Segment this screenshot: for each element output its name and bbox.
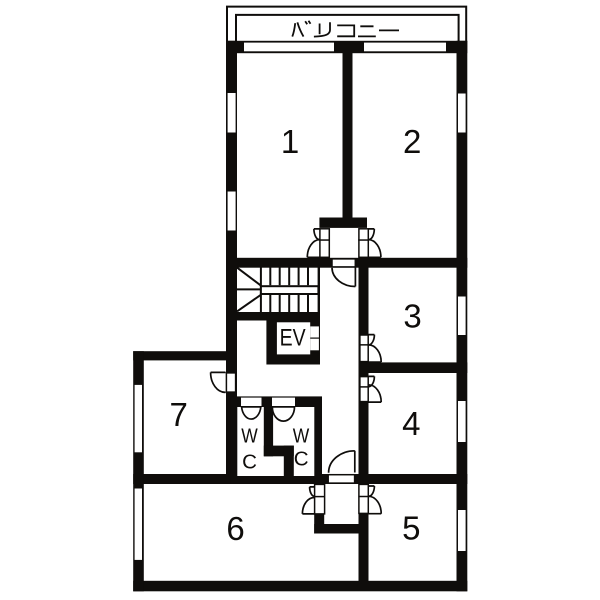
svg-text:EV: EV [280,325,307,352]
svg-text:W: W [241,425,258,448]
svg-text:W: W [293,425,310,448]
svg-text:6: 6 [226,510,244,547]
svg-text:C: C [294,447,309,470]
svg-text:1: 1 [281,123,299,160]
svg-text:2: 2 [403,123,421,160]
svg-text:4: 4 [402,405,420,442]
svg-text:5: 5 [402,509,420,546]
svg-text:7: 7 [170,396,188,433]
svg-text:3: 3 [403,297,421,334]
svg-text:C: C [242,450,257,473]
